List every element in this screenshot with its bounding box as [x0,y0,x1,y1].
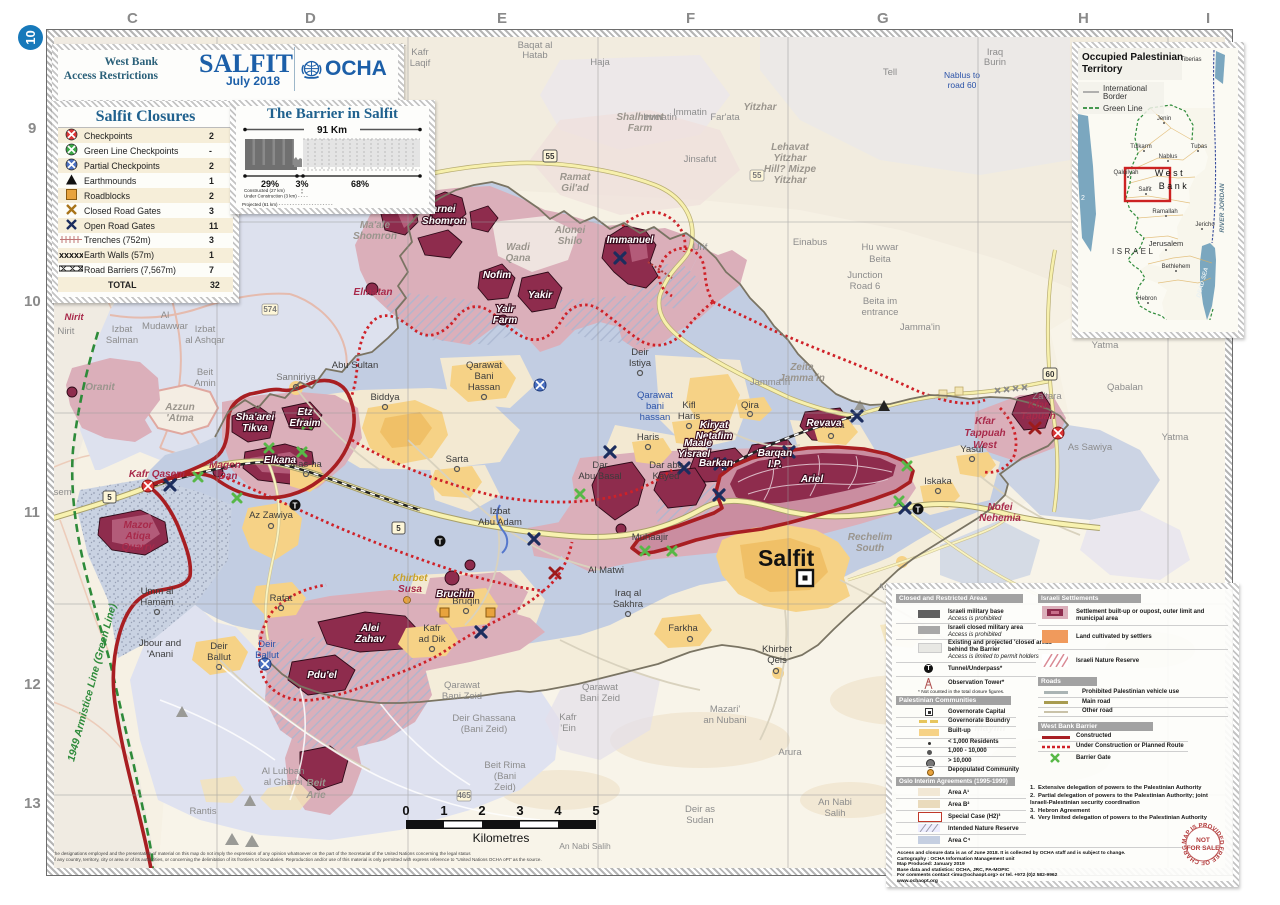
svg-text:asem: asem [48,487,71,498]
svg-text:Abu Sultan: Abu Sultan [332,360,378,371]
svg-text:Yitzhar: Yitzhar [744,102,778,113]
svg-text:West: West [973,440,997,451]
svg-text:Road 6: Road 6 [850,281,881,292]
svg-text:Revava: Revava [806,418,841,429]
svg-text:Lehavat: Lehavat [771,142,809,153]
svg-text:Izbat: Izbat [112,324,133,335]
svg-text:Mazor: Mazor [124,520,154,531]
svg-text:an Nubani: an Nubani [703,715,746,726]
svg-text:Qabalan: Qabalan [1107,382,1143,393]
svg-text:55: 55 [753,171,762,180]
svg-text:55: 55 [546,152,555,161]
svg-text:Kifl: Kifl [682,400,695,411]
svg-text:Rechelim: Rechelim [848,532,893,543]
svg-text:Shilo: Shilo [558,236,582,247]
svg-text:Umm al: Umm al [141,586,174,597]
svg-text:Qeis: Qeis [767,655,787,666]
svg-text:Farm: Farm [628,123,653,134]
svg-text:Abu Adam: Abu Adam [478,517,522,528]
svg-text:Haja: Haja [590,57,610,68]
svg-text:Immatin: Immatin [673,107,707,118]
svg-text:Sanniriya: Sanniriya [276,372,316,383]
svg-text:Dar: Dar [592,460,607,471]
svg-text:Rantis: Rantis [190,806,217,817]
svg-text:Tubas: Tubas [1191,144,1207,150]
svg-text:hassan: hassan [640,412,671,423]
svg-text:Hill? Mizpe: Hill? Mizpe [764,164,817,175]
svg-text:Shomron: Shomron [422,216,466,227]
svg-text:Einabus: Einabus [793,237,828,248]
svg-text:Territory: Territory [1082,64,1123,75]
svg-text:(Bani Zeid): (Bani Zeid) [461,724,507,735]
svg-text:Border: Border [1103,92,1127,101]
svg-text:Khirbet: Khirbet [393,573,429,584]
svg-text:Deir: Deir [631,347,648,358]
svg-text:Haris: Haris [637,432,659,443]
svg-text:NOT: NOT [1196,837,1210,844]
svg-text:Beita im: Beita im [863,296,897,307]
svg-text:West: West [1155,168,1185,178]
svg-text:entrance: entrance [862,307,899,318]
svg-text:Muhaajir: Muhaajir [632,532,668,543]
svg-text:Jericho: Jericho [1195,222,1215,228]
svg-text:Al Matwi: Al Matwi [588,565,624,576]
svg-text:Barqan: Barqan [758,448,792,459]
svg-text:Deir Ghassana: Deir Ghassana [452,713,516,724]
svg-text:'Anani: 'Anani [147,649,173,660]
svg-text:(Bani: (Bani [494,771,516,782]
svg-text:Beit: Beit [197,367,214,378]
svg-text:Wadi: Wadi [506,242,530,253]
svg-text:Salfit: Salfit [758,545,815,571]
svg-text:Iskaka: Iskaka [924,476,952,487]
svg-text:Bruchin: Bruchin [436,589,474,600]
svg-text:Maale: Maale [684,438,712,449]
svg-text:Jamma'in: Jamma'in [750,377,790,388]
svg-text:Beita: Beita [869,254,891,265]
svg-text:Hu wwar: Hu wwar [862,242,899,253]
svg-text:Yitzhar: Yitzhar [774,153,808,164]
svg-text:Occupied Palestinian: Occupied Palestinian [1082,52,1183,63]
svg-text:of any country, territory, cit: of any country, territory, city or area … [52,857,542,862]
svg-text:60: 60 [1046,370,1055,379]
svg-text:5: 5 [107,493,112,502]
svg-text:Salman: Salman [106,335,138,346]
svg-text:Kayed: Kayed [653,471,680,482]
svg-text:Kilometres: Kilometres [473,831,530,845]
svg-text:Al: Al [161,310,169,321]
svg-text:Ramat: Ramat [560,172,591,183]
svg-text:Quarry: Quarry [122,542,155,553]
svg-text:bani: bani [646,401,664,412]
svg-text:’Ein: ’Ein [560,723,576,734]
svg-text:Zeita: Zeita [789,362,814,373]
svg-text:Sha'arei: Sha'arei [236,412,275,423]
svg-text:Zeid): Zeid) [494,782,516,793]
svg-text:Hebron: Hebron [1137,296,1157,302]
svg-text:Efraim: Efraim [289,418,320,429]
svg-text:Pdu'el: Pdu'el [307,670,337,681]
svg-text:5: 5 [396,524,401,533]
svg-text:Dar abu: Dar abu [649,460,683,471]
svg-text:Elkana: Elkana [264,455,297,466]
svg-text:Sudan: Sudan [686,815,713,826]
svg-text:I.P.: I.P. [768,459,782,470]
svg-text:Kiryat: Kiryat [700,420,729,431]
svg-text:Za'tara: Za'tara [1032,391,1062,402]
svg-text:Ballut: Ballut [207,652,231,663]
svg-text:Kafr: Kafr [423,623,440,634]
svg-text:road 60: road 60 [948,80,977,90]
svg-text:Biddya: Biddya [370,392,400,403]
svg-text:Hassan: Hassan [468,382,500,393]
svg-text:Deir: Deir [258,639,275,650]
svg-text:Salfit: Salfit [1138,187,1152,193]
svg-text:Iraq al: Iraq al [615,588,641,599]
svg-text:1: 1 [440,803,447,818]
svg-text:465: 465 [457,791,471,800]
svg-text:Immanuel: Immanuel [607,235,654,246]
svg-text:al Ashqar: al Ashqar [185,335,225,346]
svg-text:Under Construction (3 km) - -: Under Construction (3 km) - - - - [244,194,308,199]
svg-text:Kafr: Kafr [559,712,576,723]
svg-text:South: South [856,543,884,554]
svg-text:Yair: Yair [496,304,516,315]
svg-text:Mazari': Mazari' [710,704,741,715]
svg-text:Nirit: Nirit [58,326,75,337]
svg-text:Far'ata: Far'ata [710,112,740,123]
svg-text:Dan: Dan [219,471,238,482]
svg-text:Burin: Burin [984,57,1006,68]
svg-text:Nehemia: Nehemia [979,513,1021,524]
svg-text:2: 2 [478,803,485,818]
svg-text:Beit Rima: Beit Rima [484,760,526,771]
svg-text:Qarawat: Qarawat [582,682,618,693]
svg-text:5: 5 [592,803,599,818]
svg-text:Bethlehem: Bethlehem [1162,264,1191,270]
svg-text:Yakir: Yakir [528,290,553,301]
svg-text:Jenin: Jenin [1157,116,1171,122]
svg-text:4: 4 [554,803,562,818]
svg-text:Farkha: Farkha [668,623,698,634]
svg-text:Hatab: Hatab [522,50,547,61]
svg-text:Tikva: Tikva [242,423,268,434]
svg-text:Alei: Alei [360,623,380,634]
svg-text:Qarawat: Qarawat [637,390,673,401]
svg-text:ISRAEL: ISRAEL [1112,247,1155,256]
svg-text:Kafr: Kafr [411,47,428,58]
svg-text:T: T [916,506,921,515]
svg-text:Yatma: Yatma [1092,340,1119,351]
svg-text:al Gharbi: al Gharbi [264,777,303,788]
svg-text:Arura: Arura [778,747,802,758]
svg-text:Green Line: Green Line [1103,104,1143,113]
svg-text:Farm: Farm [493,315,518,326]
svg-text:Sarta: Sarta [446,454,469,465]
svg-text:Gil'ad: Gil'ad [561,183,589,194]
svg-text:2: 2 [1081,195,1085,202]
svg-text:Yitzhar: Yitzhar [774,175,808,186]
svg-text:Hamam: Hamam [140,597,173,608]
svg-text:Urif: Urif [693,242,708,253]
svg-text:Mudawwar: Mudawwar [142,321,188,332]
svg-text:Zahav: Zahav [355,634,386,645]
svg-text:Tulkarm: Tulkarm [1130,144,1151,150]
svg-text:Yatma: Yatma [1162,432,1189,443]
svg-text:The designations employed and: The designations employed and the presen… [52,851,471,856]
svg-text:Qarawat: Qarawat [466,360,502,371]
svg-text:Elmatan: Elmatan [354,287,393,298]
svg-text:Kafr Qasem: Kafr Qasem [129,469,185,480]
svg-text:ad Dik: ad Dik [419,634,446,645]
svg-text:Ariel: Ariel [800,474,823,485]
svg-text:Deir as: Deir as [685,804,715,815]
svg-text:Immatin: Immatin [643,112,677,123]
svg-text:FOR SALE: FOR SALE [1187,845,1221,852]
svg-text:Qalqilyah: Qalqilyah [1113,170,1138,176]
svg-text:Tiberias: Tiberias [1180,57,1201,63]
svg-text:3: 3 [516,803,523,818]
svg-text:Nofei: Nofei [988,502,1013,513]
svg-text:Izbat: Izbat [490,506,511,517]
svg-text:0: 0 [402,803,409,818]
svg-text:RIVER JORDAN: RIVER JORDAN [1219,183,1226,232]
svg-text:xxxxx: xxxxx [59,250,83,259]
svg-text:An Nabi: An Nabi [818,797,852,808]
svg-text:Shomron: Shomron [353,231,397,242]
svg-text:Ballut: Ballut [255,650,279,661]
svg-text:Beit: Beit [307,778,327,789]
svg-text:Nablus to: Nablus to [944,70,980,80]
svg-text:An Nabi Salih: An Nabi Salih [559,841,611,851]
svg-text:As Sawiya: As Sawiya [1068,442,1113,453]
svg-text:Alonei: Alonei [554,225,586,236]
svg-text:Istiya: Istiya [629,358,652,369]
svg-text:Qira: Qira [741,400,760,411]
svg-text:574: 574 [263,305,277,314]
svg-text:Constructed (27 km): Constructed (27 km) [244,188,285,193]
svg-text:Qarawat: Qarawat [444,680,480,691]
svg-text:Jamma'in: Jamma'in [900,322,940,333]
svg-text:Atiqa: Atiqa [125,531,151,542]
svg-text:Jbour and: Jbour and [139,638,181,649]
svg-text:Bank: Bank [1159,181,1190,191]
svg-text:Bani Zeid: Bani Zeid [580,693,620,704]
svg-text:Deir: Deir [210,641,227,652]
svg-text:Bani Zeid: Bani Zeid [442,691,482,702]
svg-text:Rafat: Rafat [270,593,293,604]
svg-text:Magen: Magen [209,460,241,471]
svg-text:Arie: Arie [305,790,326,801]
svg-text:Junction: Junction [847,270,882,281]
svg-text:T: T [293,502,298,511]
svg-text:Nofim: Nofim [483,270,511,281]
svg-text:Sakhra: Sakhra [613,599,644,610]
svg-text:68%: 68% [351,179,369,189]
svg-text:Amin: Amin [194,378,216,389]
svg-text:'Atma: 'Atma [166,413,194,424]
svg-text:Oranit: Oranit [85,382,115,393]
svg-text:Tell: Tell [883,67,897,78]
svg-text:Tappuah: Tappuah [964,428,1005,439]
svg-text:Salih: Salih [824,808,845,819]
svg-text:Jinsafut: Jinsafut [684,154,717,165]
svg-text:Susa: Susa [398,584,422,595]
svg-text:Etz: Etz [298,407,313,418]
svg-text:Qana: Qana [505,253,530,264]
svg-text:T: T [438,538,443,547]
svg-text:91 Km: 91 Km [317,125,347,136]
svg-text:Bani: Bani [474,371,493,382]
svg-text:Ramallah: Ramallah [1152,209,1177,215]
svg-text:Izbat: Izbat [195,324,216,335]
svg-text:3%: 3% [295,179,308,189]
svg-text:Abu Basal: Abu Basal [578,471,621,482]
svg-text:Az Zawiya: Az Zawiya [249,510,294,521]
svg-text:Al Lubban: Al Lubban [262,766,305,777]
svg-text:Laqif: Laqif [410,58,431,69]
svg-text:Yisrael: Yisrael [678,449,711,460]
svg-text:Nablus: Nablus [1159,154,1178,160]
svg-text:Nirit: Nirit [65,312,85,323]
svg-text:Azzun: Azzun [164,402,194,413]
